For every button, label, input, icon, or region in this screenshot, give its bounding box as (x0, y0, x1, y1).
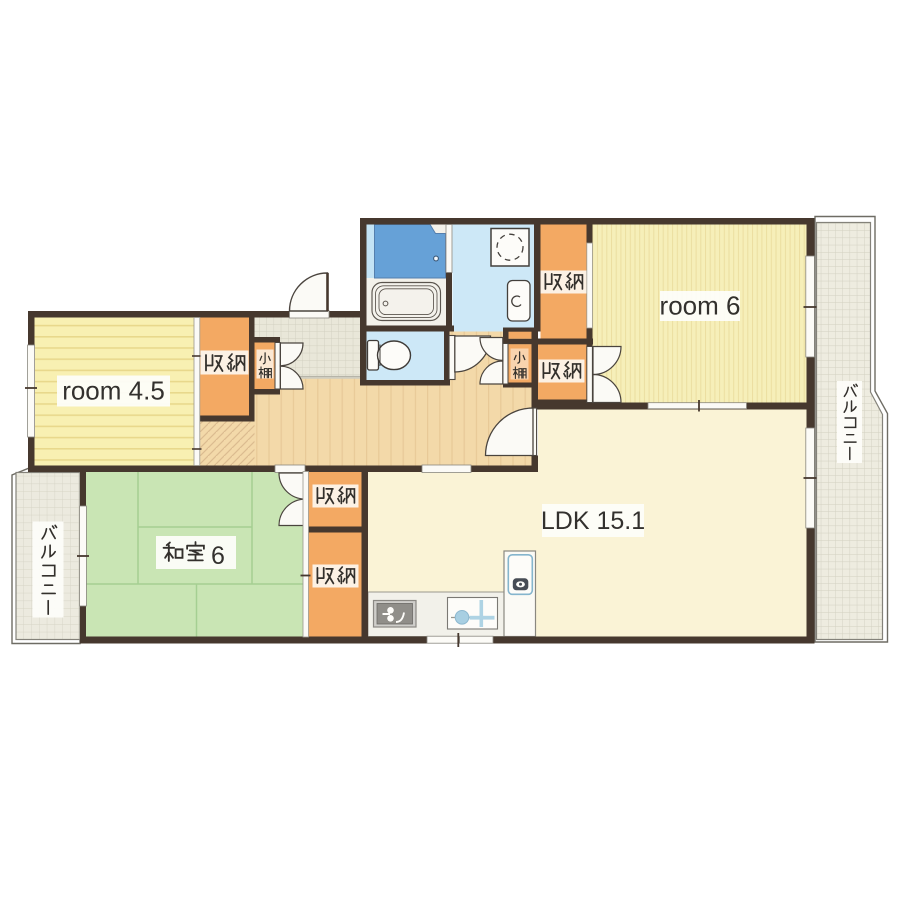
svg-text:room 4.5: room 4.5 (62, 376, 165, 406)
svg-text:room 6: room 6 (660, 291, 741, 321)
svg-text:LDK 15.1: LDK 15.1 (541, 507, 645, 535)
svg-text:6: 6 (211, 542, 225, 570)
